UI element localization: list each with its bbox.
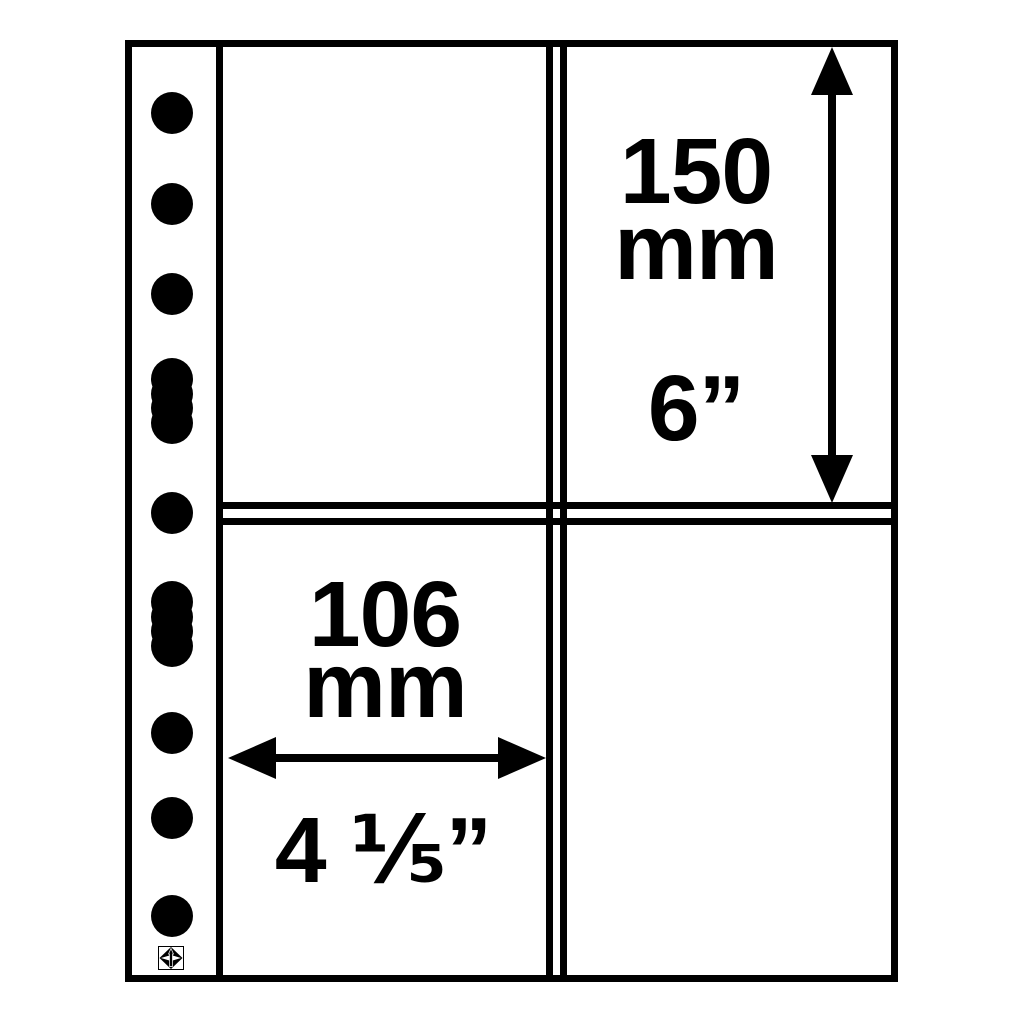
brand-logo-icon xyxy=(158,946,184,971)
binder-hole xyxy=(151,797,193,839)
pocket-width-inch-label: 4 ⅕” xyxy=(233,812,533,888)
binder-hole xyxy=(151,492,193,534)
pocket-width-unit: mm xyxy=(303,633,466,737)
pocket-height-unit: mm xyxy=(614,195,777,299)
binder-hole xyxy=(151,183,193,225)
center-horizontal-seam-bottom xyxy=(221,518,893,525)
horizontal-dimension-arrow-icon xyxy=(226,733,548,783)
album-page-diagram: 150mm 6” 106mm 4 ⅕” xyxy=(0,0,1024,1024)
center-horizontal-seam-top xyxy=(221,502,893,509)
binder-hole xyxy=(151,273,193,315)
binder-hole xyxy=(151,712,193,754)
binder-strip-divider xyxy=(216,40,223,982)
binder-hole-slotted xyxy=(150,358,194,444)
pocket-height-label: 150mm xyxy=(546,133,846,285)
binder-hole xyxy=(151,92,193,134)
binder-hole xyxy=(151,895,193,937)
pocket-width-label: 106mm xyxy=(235,579,535,721)
binder-hole-slotted xyxy=(150,581,194,667)
pocket-height-inch-label: 6” xyxy=(546,370,846,446)
